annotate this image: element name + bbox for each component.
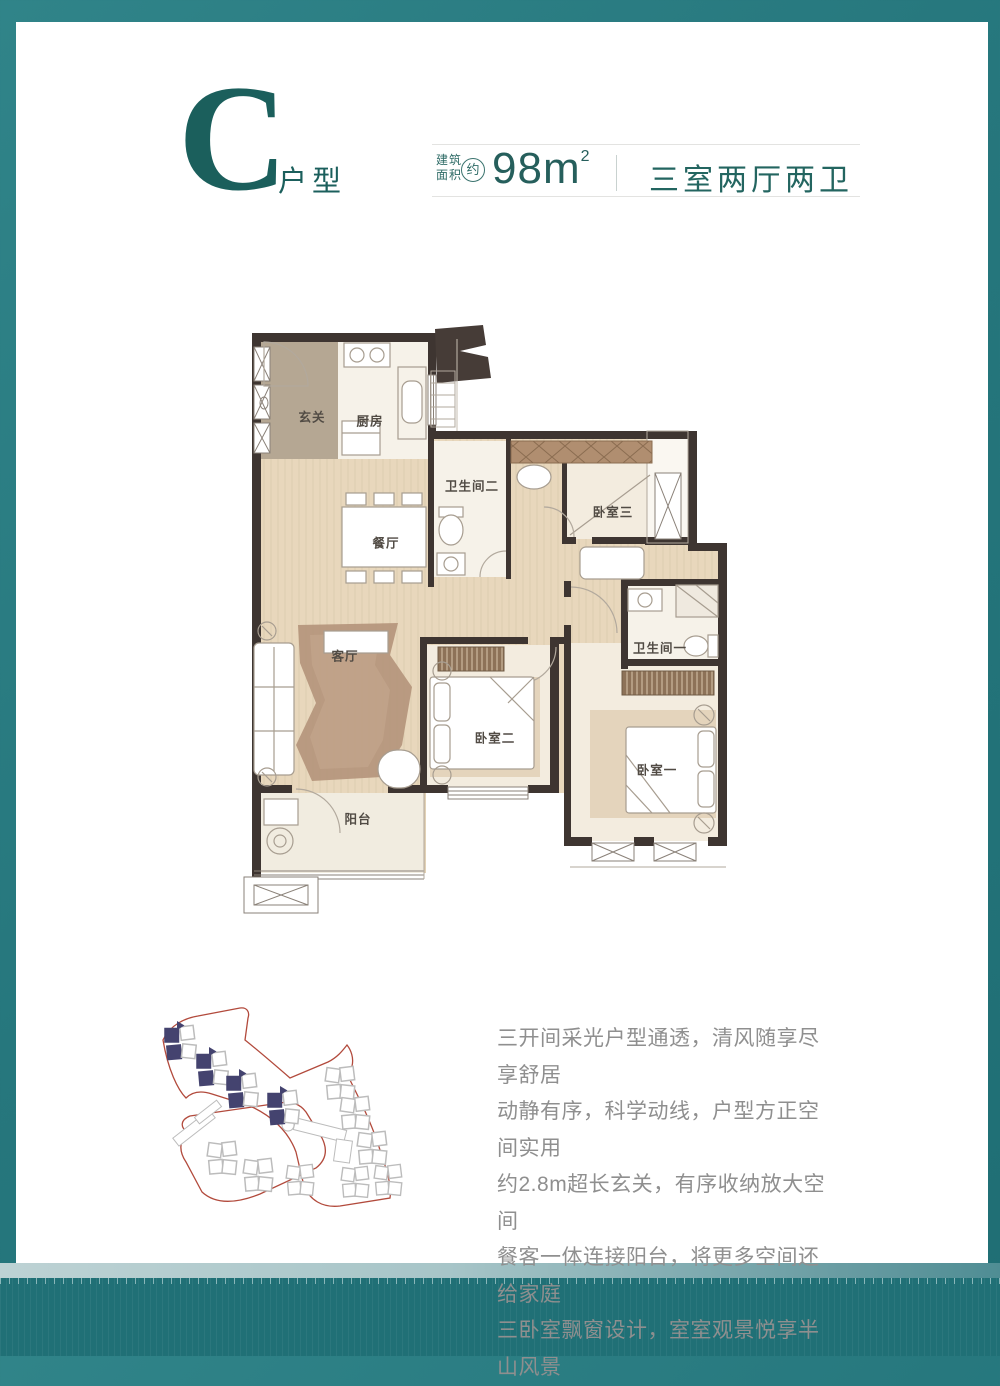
description-line: 三开间采光户型通透，清风随享尽享舒居: [497, 1021, 827, 1094]
unit-type-label: 户型: [278, 158, 346, 200]
area-exponent: 2: [581, 148, 591, 165]
area-number: 98m: [492, 144, 581, 193]
room-label-bedroom1: 卧室一: [637, 760, 678, 779]
description-line: 餐客一体连接阳台，将更多空间还给家庭: [497, 1240, 827, 1313]
site-buildings-highlighted: [165, 1021, 299, 1125]
area-prefix: 建筑面积: [436, 153, 462, 183]
description-paragraph: 三开间采光户型通透，清风随享尽享舒居 动静有序，科学动线，户型方正空间实用 约2…: [497, 1021, 827, 1386]
poster-page: { "header": { "unit_letter": "C", "unit_…: [0, 0, 1000, 1356]
room-label-dining: 餐厅: [372, 533, 399, 552]
room-label-kitchen: 厨房: [356, 411, 383, 430]
floor-plan: 玄关 厨房 餐厅 卫生间二 卧室三 卫生间一 客厅 卧室二 卧室一 阳台: [240, 325, 760, 945]
area-prefix-line2: 面积: [436, 168, 462, 182]
description-line: 约2.8m超长玄关，有序收纳放大空间: [497, 1167, 827, 1240]
unit-letter: C: [178, 62, 288, 214]
room-label-bedroom3: 卧室三: [593, 502, 634, 521]
entrance-arrow-icon: [435, 325, 491, 383]
room-label-bath1: 卫生间一: [633, 638, 687, 657]
room-label-balcony: 阳台: [344, 809, 371, 828]
room-label-bath2: 卫生间二: [445, 476, 499, 495]
header-divider: [616, 155, 617, 191]
room-label-bedroom2: 卧室二: [475, 728, 516, 747]
site-buildings-gray: [173, 1066, 402, 1197]
description-line: 三卧室飘窗设计，室室观景悦享半山风景: [497, 1313, 827, 1386]
description-line: 动静有序，科学动线，户型方正空间实用: [497, 1094, 827, 1167]
room-label-living: 客厅: [331, 646, 358, 665]
approx-mark: 约: [461, 158, 485, 182]
area-prefix-line1: 建筑: [436, 153, 462, 167]
site-map-svg: [150, 1000, 460, 1240]
site-map: [150, 1000, 460, 1240]
area-value: 98m2: [492, 144, 591, 194]
room-label-entry: 玄关: [298, 407, 325, 426]
layout-spec: 三室两厅两卫: [649, 155, 853, 199]
